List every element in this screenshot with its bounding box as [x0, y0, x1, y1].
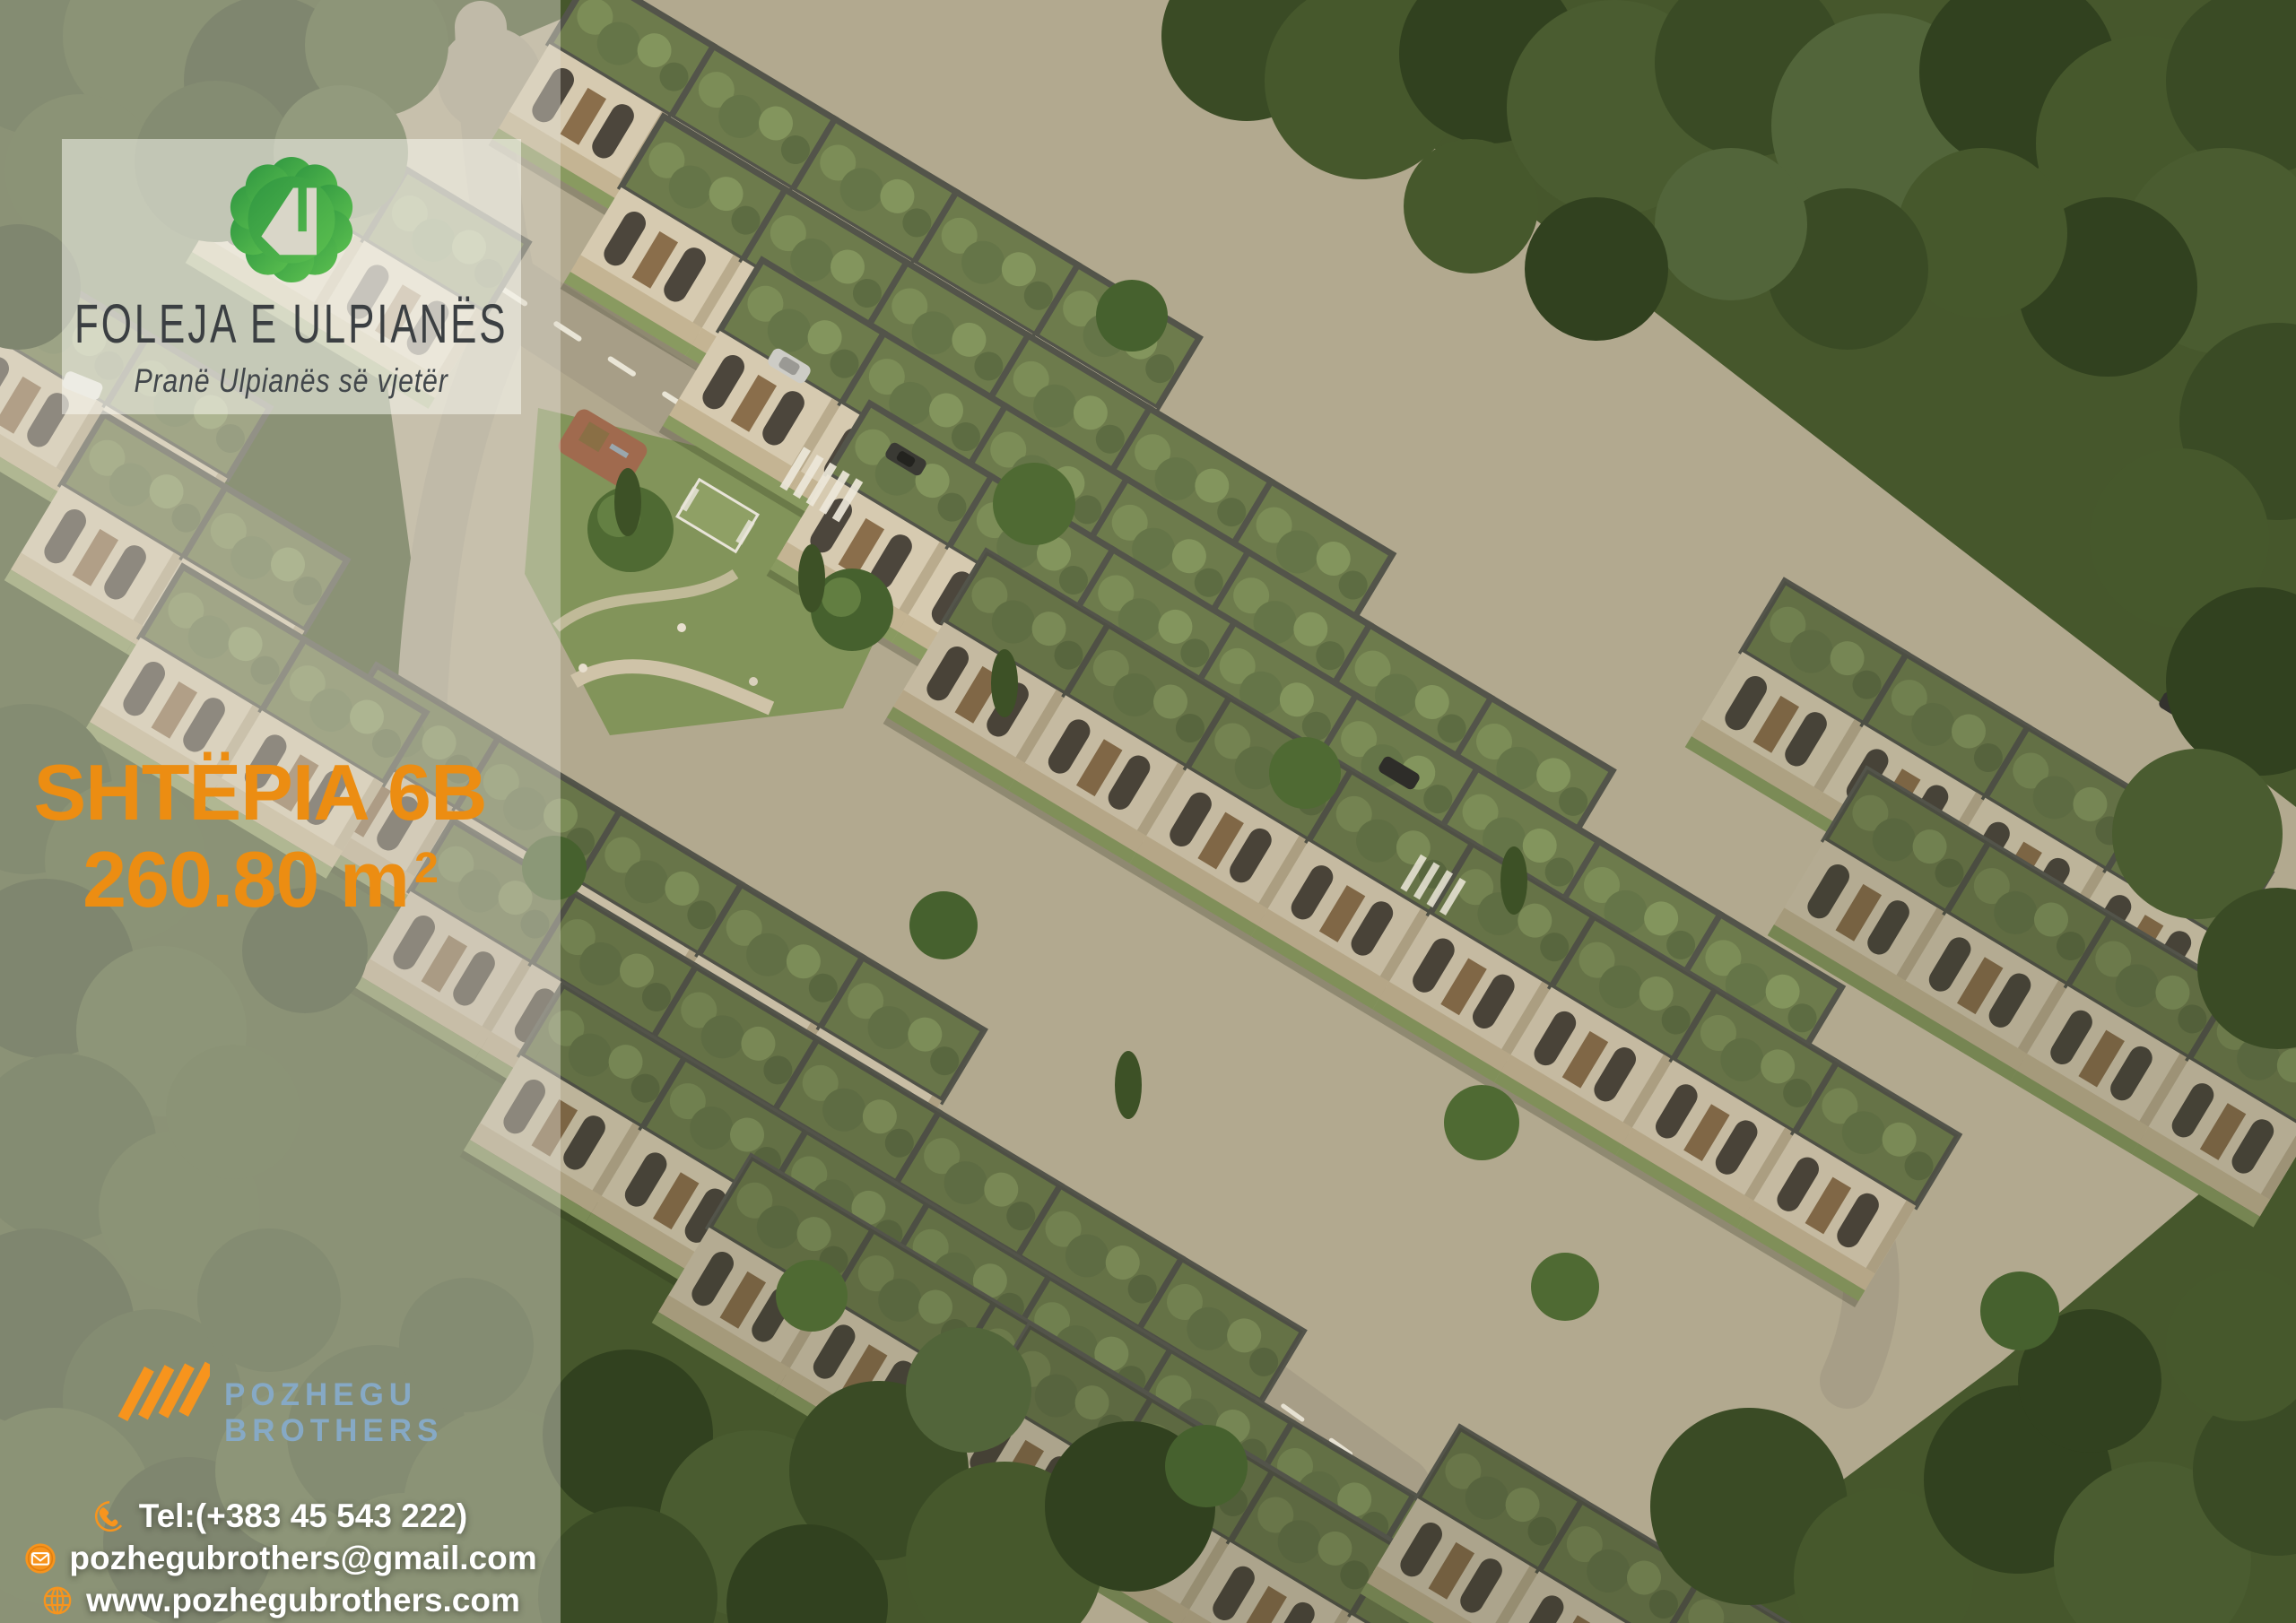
brand-panel: FOLEJA E ULPIANËS Pranë Ulpianës së vjet…	[62, 139, 521, 414]
poster: FOLEJA E ULPIANËS Pranë Ulpianës së vjet…	[0, 0, 2296, 1623]
email-icon	[22, 1541, 58, 1576]
area-value: 260.80 m	[83, 835, 409, 924]
brand-subtitle: Pranë Ulpianës së vjetër	[135, 362, 448, 400]
four-slashes-icon	[117, 1356, 210, 1426]
website-url: www.pozhegubrothers.com	[86, 1582, 520, 1619]
listing-block: SHTËPIA 6B 260.80 m2	[18, 750, 502, 924]
house-area: 260.80 m2	[18, 837, 502, 924]
phone-number: Tel:(+383 45 543 222)	[139, 1497, 467, 1535]
contact-website-row: www.pozhegubrothers.com	[25, 1582, 535, 1619]
developer-logo: POZHEGU BROTHERS	[117, 1349, 443, 1449]
contact-phone-row: Tel:(+383 45 543 222)	[25, 1497, 535, 1535]
area-exponent: 2	[414, 844, 438, 892]
email-address: pozhegubrothers@gmail.com	[69, 1540, 536, 1577]
brand-title: FOLEJA E ULPIANËS	[74, 297, 508, 352]
phone-icon	[92, 1498, 128, 1534]
contact-email-row: pozhegubrothers@gmail.com	[25, 1540, 535, 1577]
developer-name-line2: BROTHERS	[224, 1413, 443, 1449]
developer-name: POZHEGU BROTHERS	[224, 1377, 443, 1449]
globe-icon	[39, 1583, 75, 1619]
house-name: SHTËPIA 6B	[18, 750, 502, 837]
developer-name-line1: POZHEGU	[224, 1377, 443, 1413]
green-clover-logo-icon	[229, 157, 354, 282]
contact-block: Tel:(+383 45 543 222) pozhegubrothers@gm…	[25, 1497, 535, 1619]
